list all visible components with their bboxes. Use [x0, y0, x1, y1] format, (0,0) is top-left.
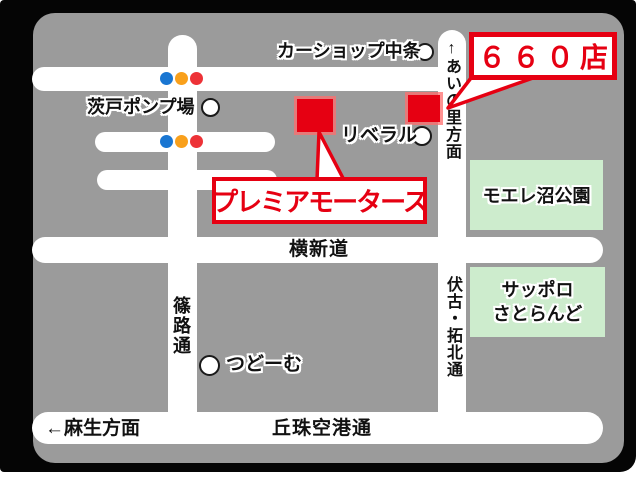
liberal-label: リベラル [341, 126, 417, 147]
traffic-signal-top [160, 72, 203, 85]
tsudome-label: つどーむ [226, 355, 302, 376]
car-shop-label: カーショップ中条 [277, 42, 421, 62]
moere-park-label: モエレ沼公園 [483, 182, 591, 208]
road-label-okadama-airport: 丘珠空港通 [272, 419, 372, 440]
signal-red-light [190, 135, 203, 148]
premier-motors-callout-label: プレミアモータース [212, 182, 427, 219]
satoland-label-line1: サッポロ [502, 278, 574, 302]
signal-blue-light [160, 135, 173, 148]
satoland-label-line2: さとらんど [493, 302, 582, 326]
signal-yellow-light [175, 135, 188, 148]
road-label-fushiko-takuhoku: 伏古・拓北通 [444, 276, 460, 378]
road-top-horizontal [32, 67, 466, 91]
signal-red-light [190, 72, 203, 85]
premier-motors-callout: プレミアモータース [212, 177, 427, 224]
satoland-area: サッポロ さとらんど [470, 267, 605, 337]
store-660-callout-label: ６６０店 [478, 36, 614, 76]
tsudome-marker-circle [199, 355, 220, 376]
pump-station-marker-circle [201, 98, 220, 117]
store-660-marker-square [408, 95, 440, 122]
access-map: モエレ沼公園 サッポロ さとらんど 横新道 丘珠空港通 ←麻生方面 ↑あいの里方… [0, 0, 640, 480]
premier-motors-marker-square [297, 99, 333, 132]
direction-label-asabu: ←麻生方面 [45, 419, 140, 440]
pump-station-label: 茨戸ポンプ場 [87, 98, 194, 118]
signal-blue-light [160, 72, 173, 85]
direction-label-ainosato: ↑あいの里方面 [443, 40, 459, 160]
road-label-yokoshindo: 横新道 [289, 240, 349, 261]
moere-park-area: モエレ沼公園 [470, 160, 603, 230]
signal-yellow-light [175, 72, 188, 85]
road-label-shinoro: 篠路通 [172, 296, 190, 356]
traffic-signal-middle [160, 135, 203, 148]
store-660-callout: ６６０店 [469, 32, 617, 80]
